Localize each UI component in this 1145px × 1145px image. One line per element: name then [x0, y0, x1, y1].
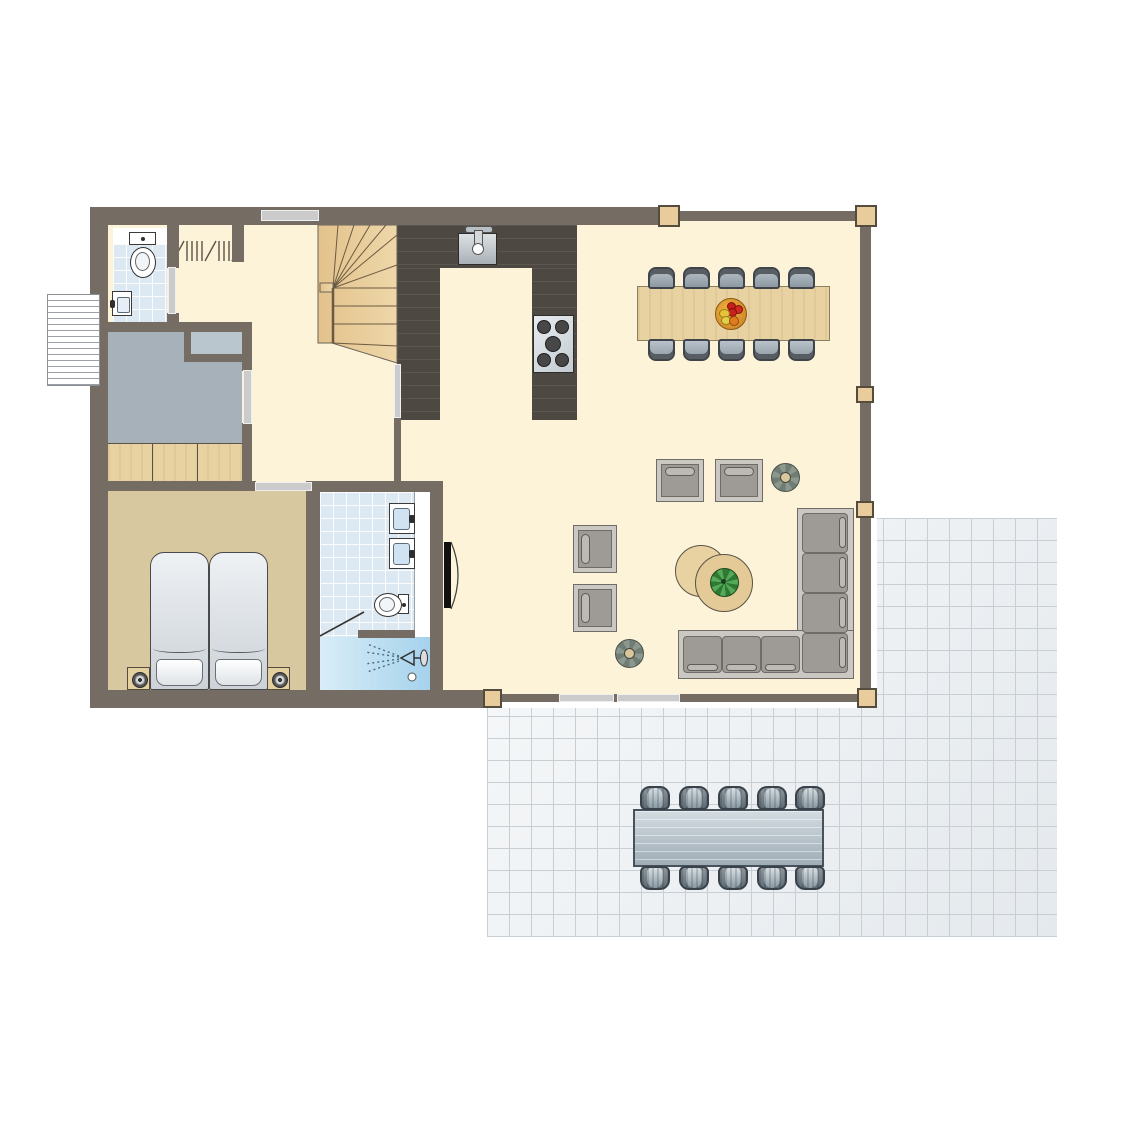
dining-chair [753, 339, 780, 361]
lamp-icon [272, 672, 288, 688]
wood-post [658, 205, 680, 227]
pillow [215, 659, 262, 686]
dining-chair [648, 267, 675, 289]
hob-burner [555, 353, 569, 367]
terrace-chair [718, 786, 748, 810]
wall-top-thick [90, 207, 676, 225]
exterior-slats [47, 294, 100, 386]
wc-hand-basin [112, 291, 132, 316]
nightstand [267, 667, 290, 690]
wall-shower-stub [358, 630, 415, 638]
terrace-chair [640, 786, 670, 810]
dining-chair [683, 267, 710, 289]
sofa-bolster [839, 557, 846, 588]
duvet-fold [153, 643, 206, 653]
floor-plan-canvas [0, 0, 1145, 1145]
wall-coatrack-right [232, 225, 244, 262]
wall-bedroom-top [108, 481, 256, 491]
basin-tap-icon [409, 550, 415, 558]
terrace-chair [718, 866, 748, 890]
duct-shaft [191, 331, 242, 354]
dining-chair [788, 339, 815, 361]
terrace-chair [757, 786, 787, 810]
wc-cistern [129, 232, 156, 245]
dining-chair [683, 339, 710, 361]
wall-left [90, 207, 108, 708]
terrace-chair [757, 866, 787, 890]
wood-post [857, 688, 877, 708]
washbasin [389, 538, 415, 569]
wood-post [483, 689, 502, 708]
sliding-window-bottom [560, 695, 613, 701]
bedroom-door-bar [256, 483, 311, 490]
wood-post [855, 205, 877, 227]
outdoor-dining-table [633, 809, 824, 867]
wall-bottom-thick [90, 690, 497, 708]
wood-post [856, 386, 874, 403]
wall-right-thin [860, 211, 871, 702]
toilet-bowl-inner [379, 597, 395, 612]
terrace-chair [640, 866, 670, 890]
wall-wc-right-upper [167, 225, 179, 268]
wall-bathroom-right [430, 481, 443, 690]
wall-bedroom-bathroom [306, 481, 320, 690]
bathroom-door-arc [449, 540, 467, 611]
hob-burner [545, 336, 561, 352]
table-plant-icon [710, 568, 739, 597]
kitchen-floor-left [397, 268, 440, 420]
nightstand [127, 667, 150, 690]
wardrobe-divider [197, 443, 198, 481]
wall-bathroom-top [310, 481, 440, 492]
fruit-bowl [715, 298, 747, 330]
terrace-chair [679, 786, 709, 810]
armchair [573, 584, 617, 632]
wall-storage-right-lower [242, 423, 252, 482]
wall-bottom-thin [497, 694, 866, 702]
sofa-bolster [839, 517, 846, 548]
sofa-bolster [839, 637, 846, 668]
basin-tap-icon [409, 515, 415, 523]
hob-burner [555, 320, 569, 334]
wall-wc-bottom [108, 322, 252, 332]
pillow [156, 659, 203, 686]
shower-head-icon [358, 640, 430, 688]
dining-chair [788, 267, 815, 289]
washbasin [389, 503, 415, 534]
armchair [656, 459, 704, 502]
wall-storage-right-upper [242, 331, 252, 371]
terrace-chair [795, 786, 825, 810]
wc-door-bar [169, 268, 175, 313]
winder-staircase [318, 225, 397, 363]
faucet-base-icon [472, 243, 484, 255]
dining-chair [718, 339, 745, 361]
armchair [573, 525, 617, 573]
hob-burner [537, 353, 551, 367]
lamp-icon [132, 672, 148, 688]
hob-burner [537, 320, 551, 334]
built-in-wardrobe [108, 443, 242, 481]
sofa-bolster [839, 597, 846, 628]
storage-door-bar [244, 371, 251, 423]
window-top-wall [262, 211, 318, 220]
hall-opening-bar [395, 365, 400, 417]
terrace-chair [679, 866, 709, 890]
sofa-bolster [687, 664, 718, 671]
coat-rack-icon [172, 238, 238, 264]
wc-toilet-bowl-inner [135, 252, 150, 271]
wardrobe-divider [152, 443, 153, 481]
wood-post [856, 501, 874, 518]
basin-tap-icon [110, 300, 115, 308]
dining-chair [718, 267, 745, 289]
wall-top-thin [676, 211, 866, 221]
wall-hall-stub [394, 418, 401, 483]
dining-chair [648, 339, 675, 361]
sliding-window-bottom [618, 695, 679, 701]
terrace-chair [795, 866, 825, 890]
potted-plant-icon [615, 639, 644, 668]
potted-plant-icon [771, 463, 800, 492]
sofa-bolster [726, 664, 757, 671]
sofa-bolster [765, 664, 796, 671]
fruit-orange [729, 316, 739, 326]
armchair [715, 459, 763, 502]
dining-chair [753, 267, 780, 289]
duvet-fold [212, 643, 265, 653]
